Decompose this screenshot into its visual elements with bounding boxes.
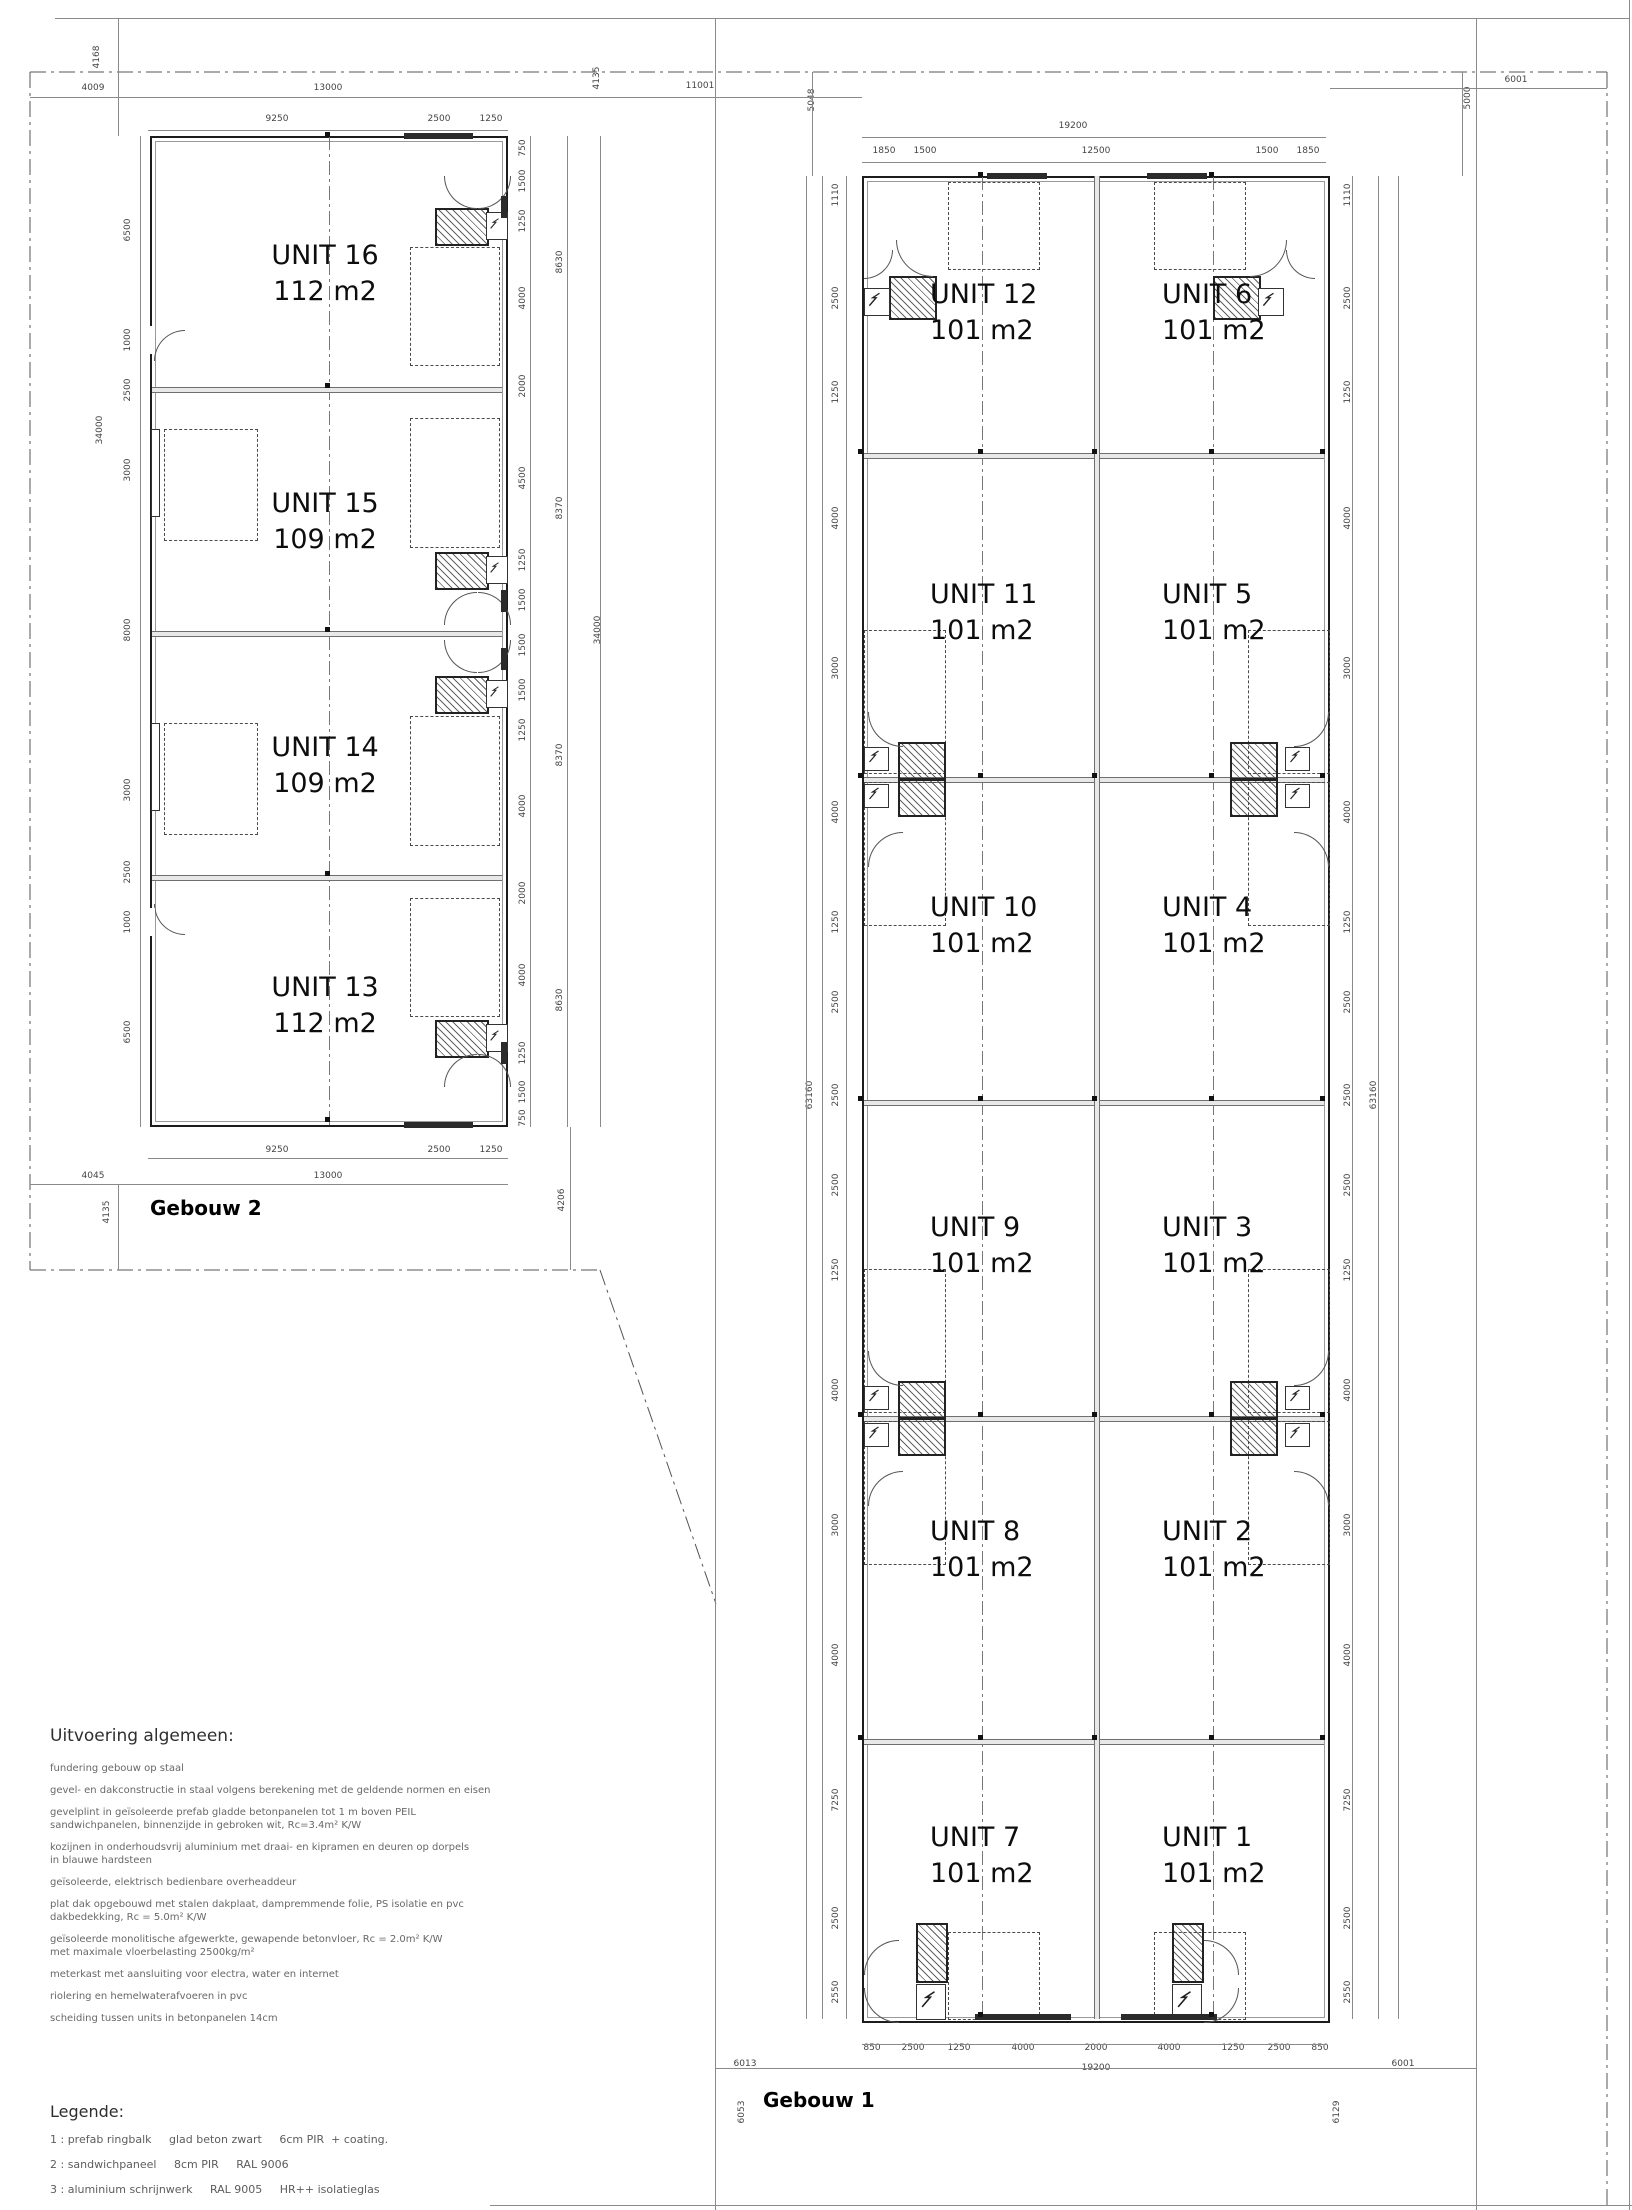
dim-label: 3000: [831, 1514, 841, 1537]
dimension-line: [30, 97, 508, 98]
electric-meter-niche: [1285, 1423, 1310, 1447]
dimension-line: [30, 1184, 508, 1185]
dim-label: 13000: [314, 1171, 343, 1181]
unit-area: 101 m2: [1162, 1550, 1266, 1586]
dim-label: 1250: [518, 719, 528, 742]
dim-label: 19200: [1059, 121, 1088, 131]
legend-item: 2 : sandwichpaneel 8cm PIR RAL 9006: [50, 2158, 650, 2171]
steel-column-post: [325, 871, 330, 876]
electric-meter-niche: [916, 1984, 946, 2020]
unit-label: UNIT 14109 m2: [271, 730, 378, 802]
note-line: geïsoleerde, elektrisch bedienbare overh…: [50, 1876, 650, 1889]
dim-label: 2500: [428, 114, 451, 124]
dim-label: 1250: [518, 549, 528, 572]
dimension-line: [812, 72, 813, 176]
meterkast-wc-block: [435, 676, 489, 714]
unit-name: UNIT 4: [1162, 890, 1266, 926]
dim-label: 6001: [1505, 75, 1528, 85]
unit-label: UNIT 10101 m2: [930, 890, 1037, 962]
notes-heading: Uitvoering algemeen:: [50, 1726, 650, 1746]
unit-area: 109 m2: [271, 522, 378, 558]
steel-column-post: [325, 383, 330, 388]
dim-label: 6129: [1332, 2101, 1342, 2124]
frame-line-bottom: [490, 2205, 1632, 2206]
lightning-icon: [488, 558, 502, 578]
note-line: gevel- en dakconstructie in staal volgen…: [50, 1784, 650, 1797]
unit-label: UNIT 12101 m2: [930, 277, 1037, 349]
dim-label: 1250: [831, 911, 841, 934]
dim-label: 4000: [518, 795, 528, 818]
electric-meter-niche: [864, 747, 889, 771]
dimension-line: [715, 2068, 1476, 2069]
legend-item: 3 : aluminium schrijnwerk RAL 9005 HR++ …: [50, 2183, 650, 2196]
electric-meter-niche: [1285, 747, 1310, 771]
dim-label: 8000: [123, 619, 133, 642]
steel-column-post: [978, 773, 983, 778]
loading-zone-dashed-rect: [164, 723, 258, 835]
dim-label: 5000: [1463, 87, 1473, 110]
dimension-line: [148, 130, 508, 131]
unit-name: UNIT 10: [930, 890, 1037, 926]
dim-label: 4009: [82, 83, 105, 93]
steel-column-post: [978, 172, 983, 177]
window-frame: [151, 723, 160, 811]
unit-name: UNIT 3: [1162, 1210, 1266, 1246]
lightning-icon: [1174, 1986, 1196, 2014]
unit-area: 101 m2: [1162, 1856, 1266, 1892]
steel-column-post: [1209, 2012, 1214, 2017]
steel-column-post: [1209, 449, 1214, 454]
dimension-line: [140, 136, 141, 1127]
dim-label: 4045: [82, 1171, 105, 1181]
lightning-icon: [866, 1425, 883, 1441]
electric-meter-niche: [864, 288, 890, 316]
dim-label: 8370: [555, 744, 565, 767]
dimension-line: [530, 136, 531, 1127]
meterkast-wc-block: [898, 742, 946, 780]
dimension-line: [846, 176, 847, 2019]
unit-label: UNIT 2101 m2: [1162, 1514, 1266, 1586]
dim-label: 4000: [831, 801, 841, 824]
loading-zone-dashed-rect: [410, 247, 500, 366]
dimension-line: [508, 97, 862, 98]
dimension-line: [1398, 176, 1399, 2019]
steel-column-post: [1320, 773, 1325, 778]
dimension-line: [862, 162, 1326, 163]
dim-label: 1500: [1256, 146, 1279, 156]
lightning-icon: [488, 682, 502, 702]
sectional-door-band: [404, 1122, 473, 1128]
unit-name: UNIT 5: [1162, 577, 1266, 613]
door-opening-gap: [148, 326, 155, 354]
lightning-icon: [918, 1986, 940, 2014]
dim-label: 1250: [831, 381, 841, 404]
unit-label: UNIT 5101 m2: [1162, 577, 1266, 649]
unit-label: UNIT 11101 m2: [930, 577, 1037, 649]
unit-label: UNIT 13112 m2: [271, 970, 378, 1042]
lightning-icon: [1287, 1425, 1304, 1441]
sectional-door-band: [501, 648, 507, 670]
loading-zone-dashed-rect: [410, 418, 500, 548]
window-frame: [151, 429, 160, 517]
lightning-icon: [488, 1026, 502, 1046]
sectional-door-band: [501, 196, 507, 218]
unit-area: 101 m2: [930, 313, 1037, 349]
dim-label: 1250: [518, 210, 528, 233]
legend-item: 1 : prefab ringbalk glad beton zwart 6cm…: [50, 2133, 650, 2146]
unit-label: UNIT 16112 m2: [271, 238, 378, 310]
unit-area: 101 m2: [1162, 926, 1266, 962]
meterkast-wc-block: [898, 1381, 946, 1419]
gebouw1-title: Gebouw 1: [763, 2088, 875, 2112]
dim-label: 2500: [831, 287, 841, 310]
dim-label: 4168: [92, 46, 102, 69]
legend: Legende: 1 : prefab ringbalk glad beton …: [50, 2102, 650, 2210]
dim-label: 6500: [123, 219, 133, 242]
notes-list: fundering gebouw op staalgevel- en dakco…: [50, 1762, 650, 2025]
dim-label: 1850: [873, 146, 896, 156]
loading-zone-dashed-rect: [948, 182, 1040, 270]
floorplan-drawing: Gebouw 2 Gebouw 1 Uitvoering algemeen: f…: [0, 0, 1632, 2210]
parcel-line-west: [715, 18, 716, 2210]
steel-column-post: [978, 1735, 983, 1740]
steel-column-post: [858, 773, 863, 778]
frame-line-top: [55, 18, 1629, 19]
dim-label: 2000: [518, 375, 528, 398]
dim-label: 9250: [266, 1145, 289, 1155]
sectional-door-band: [404, 133, 473, 139]
meterkast-wc-block: [1230, 1381, 1278, 1419]
lightning-icon: [1287, 786, 1304, 802]
unit-label: UNIT 7101 m2: [930, 1820, 1034, 1892]
dim-label: 3000: [123, 779, 133, 802]
steel-column-post: [325, 1117, 330, 1122]
uitvoering-notes: Uitvoering algemeen: fundering gebouw op…: [50, 1726, 650, 2034]
dim-label: 1500: [518, 170, 528, 193]
unit-name: UNIT 2: [1162, 1514, 1266, 1550]
unit-name: UNIT 16: [271, 238, 378, 274]
dim-label: 2550: [831, 1981, 841, 2004]
steel-column-post: [1209, 1735, 1214, 1740]
dimension-line: [1462, 72, 1463, 176]
unit-name: UNIT 15: [271, 486, 378, 522]
dim-label: 4000: [831, 507, 841, 530]
steel-column-post: [1092, 449, 1097, 454]
electric-meter-niche: [864, 784, 889, 808]
unit-area: 101 m2: [1162, 613, 1266, 649]
dim-label: 8630: [555, 989, 565, 1012]
note-line: gevelplint in geïsoleerde prefab gladde …: [50, 1806, 650, 1832]
dim-label: 4000: [831, 1379, 841, 1402]
unit-area: 101 m2: [1162, 313, 1266, 349]
dimension-line: [600, 136, 601, 1127]
dim-label: 1000: [123, 911, 133, 934]
dim-label: 1500: [518, 589, 528, 612]
unit-label: UNIT 4101 m2: [1162, 890, 1266, 962]
dimension-line: [1378, 176, 1379, 2019]
legend-heading: Legende:: [50, 2102, 650, 2121]
dim-label: 1500: [518, 634, 528, 657]
loading-zone-dashed-rect: [410, 716, 500, 846]
loading-zone-dashed-rect: [410, 898, 500, 1017]
steel-column-post: [1092, 1412, 1097, 1417]
dim-label: 4000: [518, 287, 528, 310]
note-line: meterkast met aansluiting voor electra, …: [50, 1968, 650, 1981]
electric-meter-niche: [486, 556, 508, 584]
steel-column-post: [978, 2012, 983, 2017]
unit-area: 112 m2: [271, 1006, 378, 1042]
electric-meter-niche: [1285, 1386, 1310, 1410]
dimension-line: [862, 2044, 1326, 2045]
dimension-line: [822, 176, 823, 2019]
steel-column-post: [1320, 1735, 1325, 1740]
steel-column-post: [1092, 1735, 1097, 1740]
steel-column-post: [978, 1412, 983, 1417]
unit-area: 101 m2: [930, 926, 1037, 962]
dim-label: 2000: [518, 882, 528, 905]
unit-label: UNIT 1101 m2: [1162, 1820, 1266, 1892]
electric-meter-niche: [864, 1386, 889, 1410]
dim-label: 4500: [518, 467, 528, 490]
steel-column-post: [1209, 1412, 1214, 1417]
dim-label: 13000: [314, 83, 343, 93]
unit-name: UNIT 14: [271, 730, 378, 766]
steel-column-post: [1092, 1096, 1097, 1101]
dim-label: 2500: [831, 1174, 841, 1197]
meterkast-wc-block: [916, 1923, 948, 1983]
unit-area: 101 m2: [930, 613, 1037, 649]
dim-label: 7250: [831, 1789, 841, 1812]
dim-label: 2500: [831, 1907, 841, 1930]
dim-label: 2500: [428, 1145, 451, 1155]
dimension-line: [1352, 176, 1353, 2019]
unit-area: 101 m2: [930, 1246, 1034, 1282]
dim-label: 4135: [102, 1201, 112, 1224]
dim-label: 2500: [831, 1084, 841, 1107]
dimension-line: [806, 176, 807, 2019]
dim-label: 2500: [123, 379, 133, 402]
dim-label: 3000: [831, 657, 841, 680]
dimension-line: [148, 1158, 508, 1159]
dim-label: 1250: [480, 114, 503, 124]
note-line: kozijnen in onderhoudsvrij aluminium met…: [50, 1841, 650, 1867]
meterkast-wc-block: [898, 779, 946, 817]
steel-column-post: [1209, 172, 1214, 177]
unit-name: UNIT 9: [930, 1210, 1034, 1246]
dim-label: 4206: [557, 1189, 567, 1212]
steel-column-post: [858, 449, 863, 454]
unit-area: 109 m2: [271, 766, 378, 802]
frame-line-right: [1629, 0, 1630, 2210]
dim-label: 12500: [1082, 146, 1111, 156]
dim-label: 1500: [518, 679, 528, 702]
note-line: fundering gebouw op staal: [50, 1762, 650, 1775]
dim-label: 4000: [518, 964, 528, 987]
meterkast-wc-block: [898, 1418, 946, 1456]
note-line: plat dak opgebouwd met stalen dakplaat, …: [50, 1898, 650, 1924]
gebouw2-title: Gebouw 2: [150, 1196, 262, 1220]
dim-label: 750: [518, 139, 528, 156]
dim-label: 1250: [831, 1259, 841, 1282]
meterkast-wc-block: [435, 208, 489, 246]
dim-label: 9250: [266, 114, 289, 124]
door-opening-gap: [148, 908, 155, 936]
unit-label: UNIT 9101 m2: [930, 1210, 1034, 1282]
note-line: riolering en hemelwaterafvoeren in pvc: [50, 1990, 650, 2003]
unit-label: UNIT 15109 m2: [271, 486, 378, 558]
unit-area: 101 m2: [930, 1550, 1034, 1586]
dim-label: 1110: [831, 184, 841, 207]
steel-column-post: [1320, 1412, 1325, 1417]
unit-name: UNIT 12: [930, 277, 1037, 313]
dim-label: 750: [518, 1109, 528, 1126]
steel-column-post: [858, 1412, 863, 1417]
meterkast-wc-block: [1230, 742, 1278, 780]
unit-name: UNIT 11: [930, 577, 1037, 613]
unit-area: 112 m2: [271, 274, 378, 310]
steel-column-post: [1209, 1096, 1214, 1101]
parcel-line-east: [1476, 18, 1477, 2210]
loading-zone-dashed-rect: [164, 429, 258, 541]
steel-column-post: [858, 1096, 863, 1101]
dim-label: 1500: [914, 146, 937, 156]
meterkast-wc-block: [1230, 779, 1278, 817]
steel-column-post: [325, 132, 330, 137]
meterkast-wc-block: [1230, 1418, 1278, 1456]
dim-label: 1500: [518, 1081, 528, 1104]
unit-label: UNIT 8101 m2: [930, 1514, 1034, 1586]
sectional-door-band: [501, 1042, 507, 1064]
sectional-door-band: [501, 590, 507, 612]
sectional-door-band: [1147, 173, 1207, 179]
steel-column-post: [325, 627, 330, 632]
dim-label: 8370: [555, 497, 565, 520]
meterkast-wc-block: [435, 1020, 489, 1058]
loading-zone-dashed-rect: [948, 1932, 1040, 2020]
electric-meter-niche: [864, 1423, 889, 1447]
steel-column-post: [1209, 773, 1214, 778]
dimension-line: [862, 137, 1326, 138]
dim-label: 1000: [123, 329, 133, 352]
sectional-door-band: [987, 173, 1047, 179]
steel-column-post: [858, 1735, 863, 1740]
dim-label: 3000: [123, 459, 133, 482]
unit-name: UNIT 13: [271, 970, 378, 1006]
dim-label: 34000: [593, 616, 603, 645]
steel-column-post: [978, 449, 983, 454]
steel-column-post: [1320, 449, 1325, 454]
dim-label: 4135: [592, 67, 602, 90]
dimension-line: [1330, 88, 1607, 89]
dimension-line: [118, 18, 119, 136]
lightning-icon: [866, 786, 883, 802]
unit-name: UNIT 6: [1162, 277, 1266, 313]
unit-name: UNIT 8: [930, 1514, 1034, 1550]
dim-label: 6500: [123, 1021, 133, 1044]
note-line: geïsoleerde monolitische afgewerkte, gew…: [50, 1933, 650, 1959]
unit-label: UNIT 6101 m2: [1162, 277, 1266, 349]
lightning-icon: [488, 214, 502, 234]
legend-list: 1 : prefab ringbalk glad beton zwart 6cm…: [50, 2133, 650, 2210]
dim-label: 1850: [1297, 146, 1320, 156]
dim-label: 2500: [123, 861, 133, 884]
meterkast-wc-block: [1172, 1923, 1204, 1983]
unit-name: UNIT 7: [930, 1820, 1034, 1856]
dim-label: 6053: [737, 2101, 747, 2124]
dimension-line: [118, 1184, 119, 1270]
loading-zone-dashed-rect: [1154, 182, 1246, 270]
electric-meter-niche: [486, 680, 508, 708]
dim-label: 2500: [831, 991, 841, 1014]
unit-label: UNIT 3101 m2: [1162, 1210, 1266, 1282]
unit-area: 101 m2: [930, 1856, 1034, 1892]
steel-column-post: [1092, 773, 1097, 778]
dimension-line: [570, 1127, 571, 1270]
meterkast-wc-block: [435, 552, 489, 590]
dim-label: 8630: [555, 251, 565, 274]
unit-area: 101 m2: [1162, 1246, 1266, 1282]
unit-name: UNIT 1: [1162, 1820, 1266, 1856]
dim-label: 11001: [686, 81, 715, 91]
dim-label: 1250: [518, 1042, 528, 1065]
note-line: scheiding tussen units in betonpanelen 1…: [50, 2012, 650, 2025]
dimension-line: [567, 136, 568, 1127]
sectional-door-band: [1121, 2014, 1217, 2020]
lightning-icon: [1287, 1388, 1304, 1404]
sectional-door-band: [975, 2014, 1071, 2020]
lightning-icon: [1287, 749, 1304, 765]
steel-column-post: [978, 1096, 983, 1101]
electric-meter-niche: [1285, 784, 1310, 808]
dim-label: 4000: [831, 1644, 841, 1667]
lightning-icon: [866, 290, 884, 310]
lightning-icon: [866, 1388, 883, 1404]
lightning-icon: [866, 749, 883, 765]
dim-label: 1250: [480, 1145, 503, 1155]
steel-column-post: [1320, 1096, 1325, 1101]
dim-label: 34000: [95, 416, 105, 445]
